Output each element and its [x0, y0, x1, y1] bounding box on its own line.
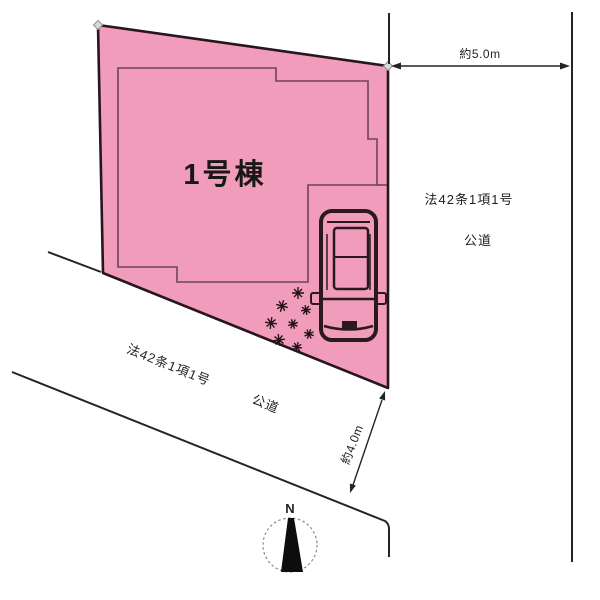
north-compass: N	[263, 501, 317, 572]
site-plan-page: 約5.0m 約4.0m 1号棟 法42条1項1号 公道 法42条1項1号 公道	[0, 0, 600, 595]
road-right-name: 法42条1項1号	[425, 192, 514, 207]
road-right-type: 公道	[464, 233, 492, 248]
dimension-top-label: 約5.0m	[459, 46, 500, 61]
plot-layout-diagram: 約5.0m 約4.0m 1号棟 法42条1項1号 公道 法42条1項1号 公道	[0, 0, 600, 595]
arrowhead-right-icon	[560, 63, 570, 70]
parcel-lot-1	[98, 25, 388, 388]
road-left-name: 法42条1項1号	[125, 341, 213, 388]
arrowhead-up-icon	[379, 391, 385, 401]
road-edge-left-far	[12, 372, 389, 557]
compass-north-label: N	[285, 501, 294, 516]
dimension-top-width: 約5.0m	[391, 46, 570, 70]
arrowhead-down-icon	[350, 484, 356, 494]
dimension-side-width: 約4.0m	[337, 391, 385, 493]
road-left-type: 公道	[250, 392, 282, 416]
car-license-plate	[342, 321, 357, 329]
north-arrow-icon	[281, 518, 303, 572]
road-edge-left-near	[48, 252, 101, 272]
arrowhead-left-icon	[391, 63, 401, 70]
building-1-label: 1号棟	[183, 158, 266, 191]
